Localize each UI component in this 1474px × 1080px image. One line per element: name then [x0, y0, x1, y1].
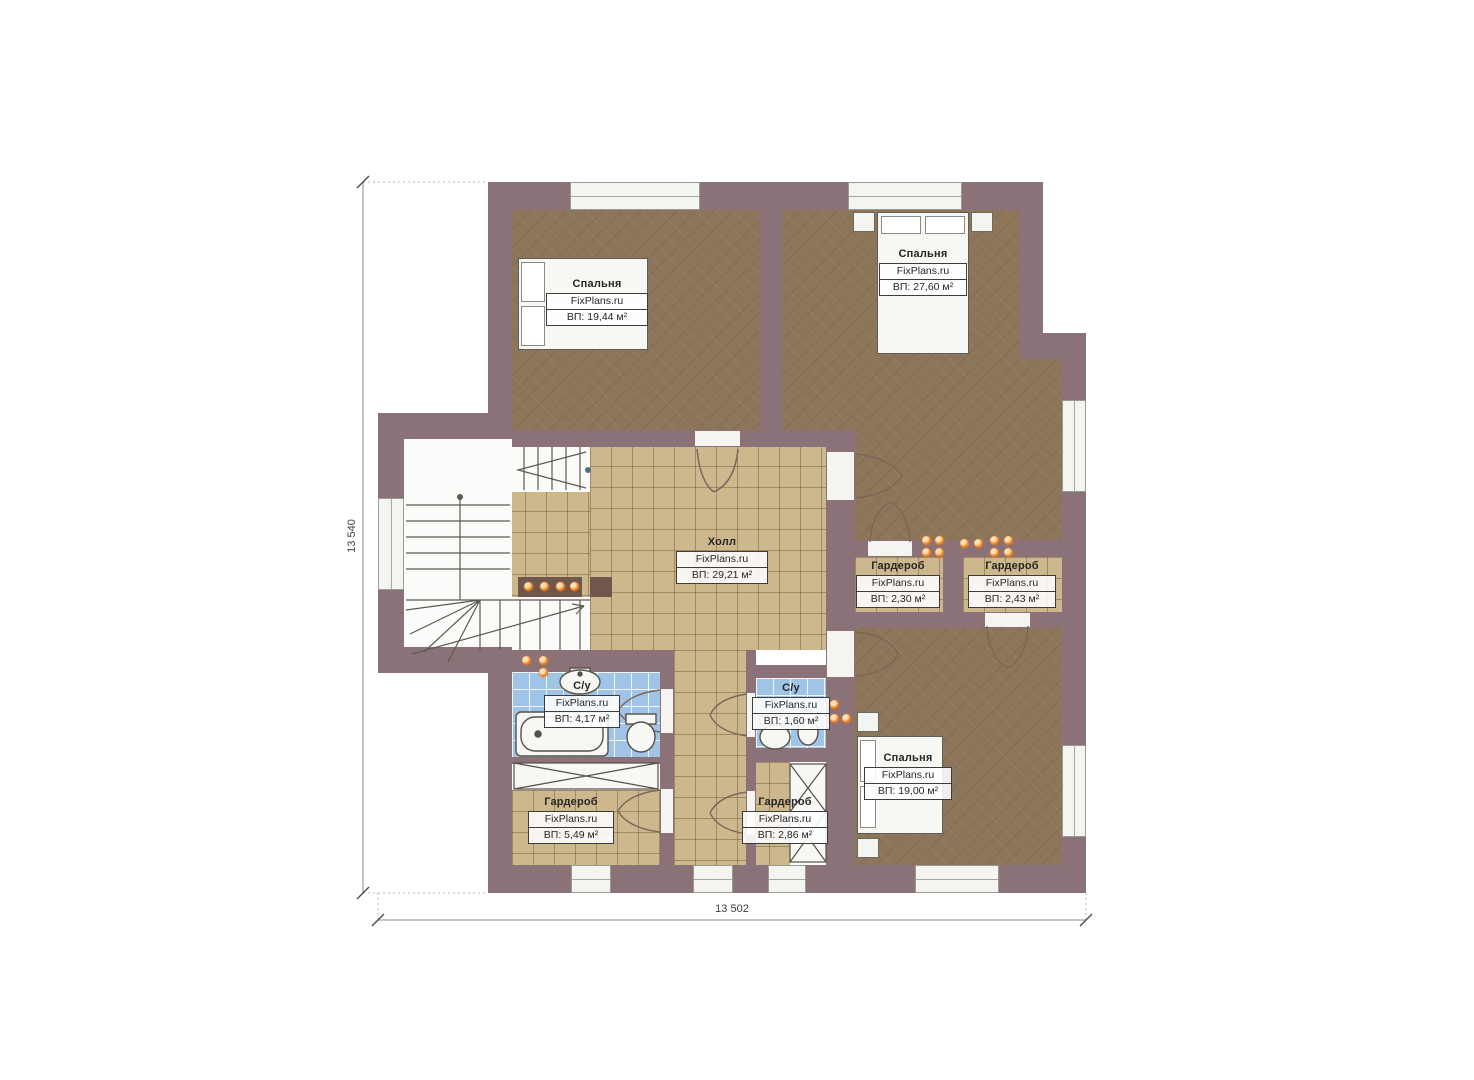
wall-between-top-bedrooms — [760, 210, 782, 447]
room-name: Холл — [676, 536, 768, 549]
downlight-icon — [539, 656, 548, 665]
pillow — [521, 306, 545, 346]
downlight-icon — [960, 539, 969, 548]
door-opening-wardrobe-ml — [868, 541, 912, 556]
window-bottom-4 — [915, 865, 999, 893]
wall-left-upper — [488, 182, 512, 439]
downlight-icon — [935, 536, 944, 545]
room-label-bedroom-top-left: Спальня FixPlans.ru ВП: 19,44 м² — [546, 278, 648, 326]
downlight-icon — [522, 656, 531, 665]
room-name: Гардероб — [856, 560, 940, 573]
brand-watermark: FixPlans.ru — [677, 552, 767, 567]
brand-watermark: FixPlans.ru — [743, 812, 827, 827]
stair-lower-flight-area — [415, 597, 590, 652]
downlight-icon — [990, 548, 999, 557]
nightstand — [853, 212, 875, 232]
wall-hall-top — [512, 430, 857, 447]
room-area: ВП: 27,60 м² — [880, 279, 966, 295]
room-label-bedroom-bottom-right: Спальня FixPlans.ru ВП: 19,00 м² — [864, 752, 952, 800]
door-opening-hall-bedroom-tr — [827, 452, 854, 500]
window-top-1 — [570, 182, 700, 210]
downlight-icon — [974, 539, 983, 548]
room-label-bathroom-left: С/у FixPlans.ru ВП: 4,17 м² — [544, 680, 620, 728]
room-label-wardrobe-bottom-center: Гардероб FixPlans.ru ВП: 2,86 м² — [742, 796, 828, 844]
room-label-bathroom-center: С/у FixPlans.ru ВП: 1,60 м² — [752, 682, 830, 730]
dimension-label-bottom: 13 502 — [700, 903, 764, 915]
mini-stair-area — [512, 445, 590, 492]
pillow — [521, 262, 545, 302]
brand-watermark: FixPlans.ru — [857, 576, 939, 591]
light-bar-stairs-2 — [590, 577, 612, 597]
nightstand — [857, 712, 879, 732]
pillow — [881, 216, 921, 234]
downlight-icon — [556, 582, 565, 591]
room-name: С/у — [544, 680, 620, 693]
room-area: ВП: 2,43 м² — [969, 591, 1055, 607]
room-name: Спальня — [879, 248, 967, 261]
window-bottom-3 — [768, 865, 806, 893]
window-bottom-1 — [571, 865, 611, 893]
room-label-bedroom-top-right: Спальня FixPlans.ru ВП: 27,60 м² — [879, 248, 967, 296]
wall-bathroom-left-bottom — [512, 757, 660, 764]
floor-bedroom-top-right-step — [1020, 358, 1062, 542]
brand-watermark: FixPlans.ru — [529, 812, 613, 827]
room-name: Гардероб — [968, 560, 1056, 573]
downlight-icon — [935, 548, 944, 557]
brand-watermark: FixPlans.ru — [880, 264, 966, 279]
floor-plan-canvas: Спальня FixPlans.ru ВП: 19,44 м² Спальня… — [0, 0, 1474, 1080]
downlight-icon — [570, 582, 579, 591]
downlight-icon — [1004, 548, 1013, 557]
window-bottom-2 — [693, 865, 733, 893]
brand-watermark: FixPlans.ru — [753, 698, 829, 713]
door-opening-wardrobe-bl — [661, 789, 673, 833]
door-opening-bathroom-left — [661, 689, 673, 733]
nightstand — [857, 838, 879, 858]
room-area: ВП: 1,60 м² — [753, 713, 829, 729]
downlight-icon — [540, 582, 549, 591]
downlight-icon — [922, 536, 931, 545]
downlight-icon — [830, 714, 839, 723]
downlight-icon — [990, 536, 999, 545]
room-area: ВП: 29,21 м² — [677, 567, 767, 583]
wall-bathroom-left-top — [512, 650, 674, 672]
pillow — [925, 216, 965, 234]
door-opening-bedroom-br — [827, 631, 854, 677]
room-label-wardrobe-bottom-left: Гардероб FixPlans.ru ВП: 5,49 м² — [528, 796, 614, 844]
room-area: ВП: 2,30 м² — [857, 591, 939, 607]
downlight-icon — [524, 582, 533, 591]
downlight-icon — [1004, 536, 1013, 545]
wardrobe-bottom-left-furniture-area — [512, 762, 660, 790]
wall-bathroom-center-bottom — [746, 748, 855, 762]
window-left-stairwell — [378, 498, 404, 590]
window-right-1 — [1062, 400, 1086, 492]
downlight-icon — [842, 714, 851, 723]
downlight-icon — [830, 700, 839, 709]
room-name: С/у — [752, 682, 830, 695]
dimension-label-left: 13 540 — [346, 514, 358, 558]
brand-watermark: FixPlans.ru — [547, 294, 647, 309]
downlight-icon — [922, 548, 931, 557]
door-opening-hall-bedroom-tl — [695, 431, 740, 446]
room-name: Гардероб — [742, 796, 828, 809]
room-label-hall: Холл FixPlans.ru ВП: 29,21 м² — [676, 536, 768, 584]
room-name: Гардероб — [528, 796, 614, 809]
room-name: Спальня — [546, 278, 648, 291]
wall-left-lower — [488, 647, 512, 893]
room-area: ВП: 2,86 м² — [743, 827, 827, 843]
room-name: Спальня — [864, 752, 952, 765]
downlight-icon — [539, 668, 548, 677]
brand-watermark: FixPlans.ru — [865, 768, 951, 783]
room-area: ВП: 5,49 м² — [529, 827, 613, 843]
room-label-wardrobe-middle-right: Гардероб FixPlans.ru ВП: 2,43 м² — [968, 560, 1056, 608]
room-area: ВП: 4,17 м² — [545, 711, 619, 727]
room-area: ВП: 19,44 м² — [547, 309, 647, 325]
nightstand — [971, 212, 993, 232]
room-area: ВП: 19,00 м² — [865, 783, 951, 799]
brand-watermark: FixPlans.ru — [545, 696, 619, 711]
wall-wardrobe-divider — [943, 557, 963, 612]
floor-hall-corridor — [674, 650, 746, 865]
window-right-2 — [1062, 745, 1086, 837]
door-opening-wardrobe-mr — [985, 613, 1030, 627]
wall-below-wardrobes — [855, 612, 1062, 628]
window-top-2 — [848, 182, 962, 210]
room-label-wardrobe-middle-left: Гардероб FixPlans.ru ВП: 2,30 м² — [856, 560, 940, 608]
brand-watermark: FixPlans.ru — [969, 576, 1055, 591]
